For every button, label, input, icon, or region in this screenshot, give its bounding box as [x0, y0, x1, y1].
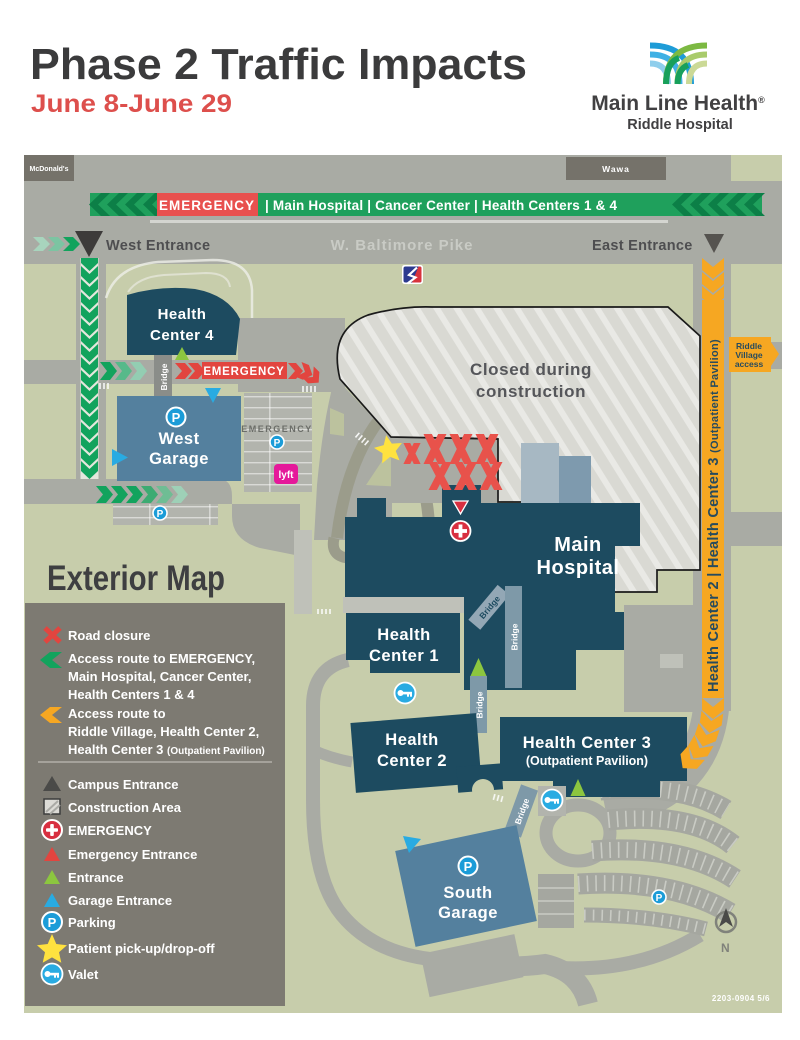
svg-text:W. Baltimore Pike: W. Baltimore Pike — [331, 237, 474, 254]
svg-text:P: P — [274, 438, 281, 449]
svg-text:East Entrance: East Entrance — [592, 238, 693, 254]
svg-text:N: N — [721, 941, 730, 955]
svg-text:Wawa: Wawa — [602, 164, 630, 174]
svg-text:P: P — [157, 509, 164, 520]
svg-text:South: South — [443, 884, 492, 902]
svg-text:Valet: Valet — [68, 967, 99, 982]
svg-text:EMERGENCY: EMERGENCY — [68, 823, 152, 838]
svg-text:Bridge: Bridge — [510, 623, 520, 650]
svg-text:McDonald's: McDonald's — [29, 166, 68, 173]
svg-text:Main: Main — [554, 534, 602, 556]
svg-text:Health Center 2 | Health Cente: Health Center 2 | Health Center 3 (Outpa… — [706, 339, 722, 692]
svg-text:Closed during: Closed during — [470, 360, 592, 379]
svg-text:access: access — [735, 359, 764, 369]
svg-text:Patient pick-up/drop-off: Patient pick-up/drop-off — [68, 941, 215, 956]
svg-text:2203-0904 5/6: 2203-0904 5/6 — [712, 994, 770, 1003]
svg-text:Main Hospital, Cancer Center,: Main Hospital, Cancer Center, — [68, 669, 252, 684]
svg-text:Entrance: Entrance — [68, 870, 124, 885]
svg-text:P: P — [656, 893, 663, 904]
svg-text:Center 1: Center 1 — [369, 647, 439, 665]
svg-text:Bridge: Bridge — [159, 363, 169, 390]
svg-text:Health: Health — [158, 306, 207, 323]
svg-text:EMERGENCY: EMERGENCY — [203, 366, 284, 378]
svg-text:Hospital: Hospital — [537, 557, 620, 579]
svg-text:| Main Hospital | Cancer Cente: | Main Hospital | Cancer Center | Health… — [265, 198, 618, 213]
svg-text:West: West — [158, 430, 199, 448]
svg-text:(Outpatient Pavilion): (Outpatient Pavilion) — [526, 754, 648, 768]
svg-text:Phase 2 Traffic Impacts: Phase 2 Traffic Impacts — [30, 40, 527, 89]
svg-text:Campus Entrance: Campus Entrance — [68, 777, 179, 792]
svg-text:Access route to EMERGENCY,: Access route to EMERGENCY, — [68, 651, 255, 666]
svg-text:Construction Area: Construction Area — [68, 800, 182, 815]
svg-text:P: P — [464, 859, 473, 874]
svg-text:Center 4: Center 4 — [150, 327, 214, 344]
svg-text:June 8-June 29: June 8-June 29 — [31, 90, 232, 118]
svg-text:Access route to: Access route to — [68, 706, 166, 721]
svg-text:P: P — [172, 410, 181, 425]
svg-text:Garage: Garage — [149, 450, 209, 468]
svg-text:Riddle Village, Health Center: Riddle Village, Health Center 2, — [68, 724, 259, 739]
svg-text:Health: Health — [385, 731, 438, 749]
svg-text:Road closure: Road closure — [68, 628, 150, 643]
svg-text:Center 2: Center 2 — [377, 752, 447, 770]
svg-text:Exterior Map: Exterior Map — [47, 559, 225, 598]
svg-text:Garage Entrance: Garage Entrance — [68, 893, 172, 908]
svg-text:West Entrance: West Entrance — [106, 238, 210, 254]
svg-text:P: P — [48, 915, 57, 930]
svg-text:Riddle Hospital: Riddle Hospital — [627, 117, 733, 133]
svg-text:Garage: Garage — [438, 904, 498, 922]
svg-text:Main Line Health®: Main Line Health® — [591, 92, 765, 115]
svg-text:Health Centers 1 & 4: Health Centers 1 & 4 — [68, 687, 195, 702]
svg-text:Parking: Parking — [68, 915, 116, 930]
svg-text:lyft: lyft — [279, 470, 295, 481]
svg-text:EMERGENCY: EMERGENCY — [241, 424, 313, 434]
svg-text:Health: Health — [377, 626, 430, 644]
svg-text:Health Center 3: Health Center 3 — [523, 734, 652, 752]
svg-text:Emergency Entrance: Emergency Entrance — [68, 847, 197, 862]
svg-text:construction: construction — [476, 382, 586, 401]
svg-text:EMERGENCY: EMERGENCY — [159, 198, 255, 213]
